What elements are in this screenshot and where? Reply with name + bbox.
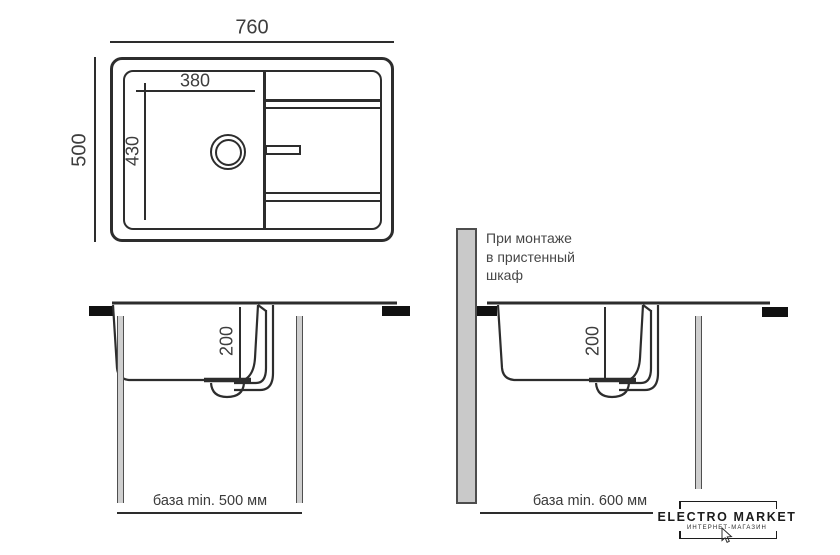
logo-frame-corner [776,531,778,539]
overflow-channel-tab [265,145,301,155]
dim-line-depth-left [239,307,241,378]
dim-line-overall-depth [94,57,96,242]
logo-frame-corner [679,531,681,539]
logo-frame-corner [679,501,681,509]
sink-inner-edge [123,70,382,230]
dim-line-overall-width [110,41,394,43]
drain-hole-inner-circle [215,139,242,166]
drainboard-groove-line [265,99,381,102]
base-width-label-right: база min. 600 мм [533,493,647,509]
dim-line-depth-right [604,307,606,378]
wall-mount-note: При монтаже в пристенный шкаф [486,229,575,285]
base-width-line-left [117,512,302,514]
sink-cross-section-drawing [85,296,415,408]
cabinet-side-panel [695,316,702,489]
dim-label-overall-width: 760 [235,17,268,40]
base-width-label-left: база min. 500 мм [153,493,267,509]
drainboard-groove-line [265,192,381,195]
base-width-line-right [480,512,653,514]
logo-frame-corner [776,501,778,509]
sink-cross-section-drawing [470,296,800,408]
cabinet-side-panel [296,316,303,503]
cabinet-side-panel [117,316,124,503]
logo-title: ELECTRO MARKET [657,510,796,524]
dim-label-overall-depth: 500 [69,133,92,166]
dim-line-bowl-depth [144,83,146,220]
drainboard-groove-line [265,107,381,110]
drainboard-groove-line [265,200,381,203]
sink-technical-drawing: 760 500 380 430 [0,0,840,555]
dim-label-bowl-width: 380 [180,71,210,92]
dim-label-depth-right: 200 [583,326,604,356]
dim-label-depth-left: 200 [217,326,238,356]
cursor-icon [721,528,733,543]
dim-label-bowl-depth: 430 [123,136,144,166]
